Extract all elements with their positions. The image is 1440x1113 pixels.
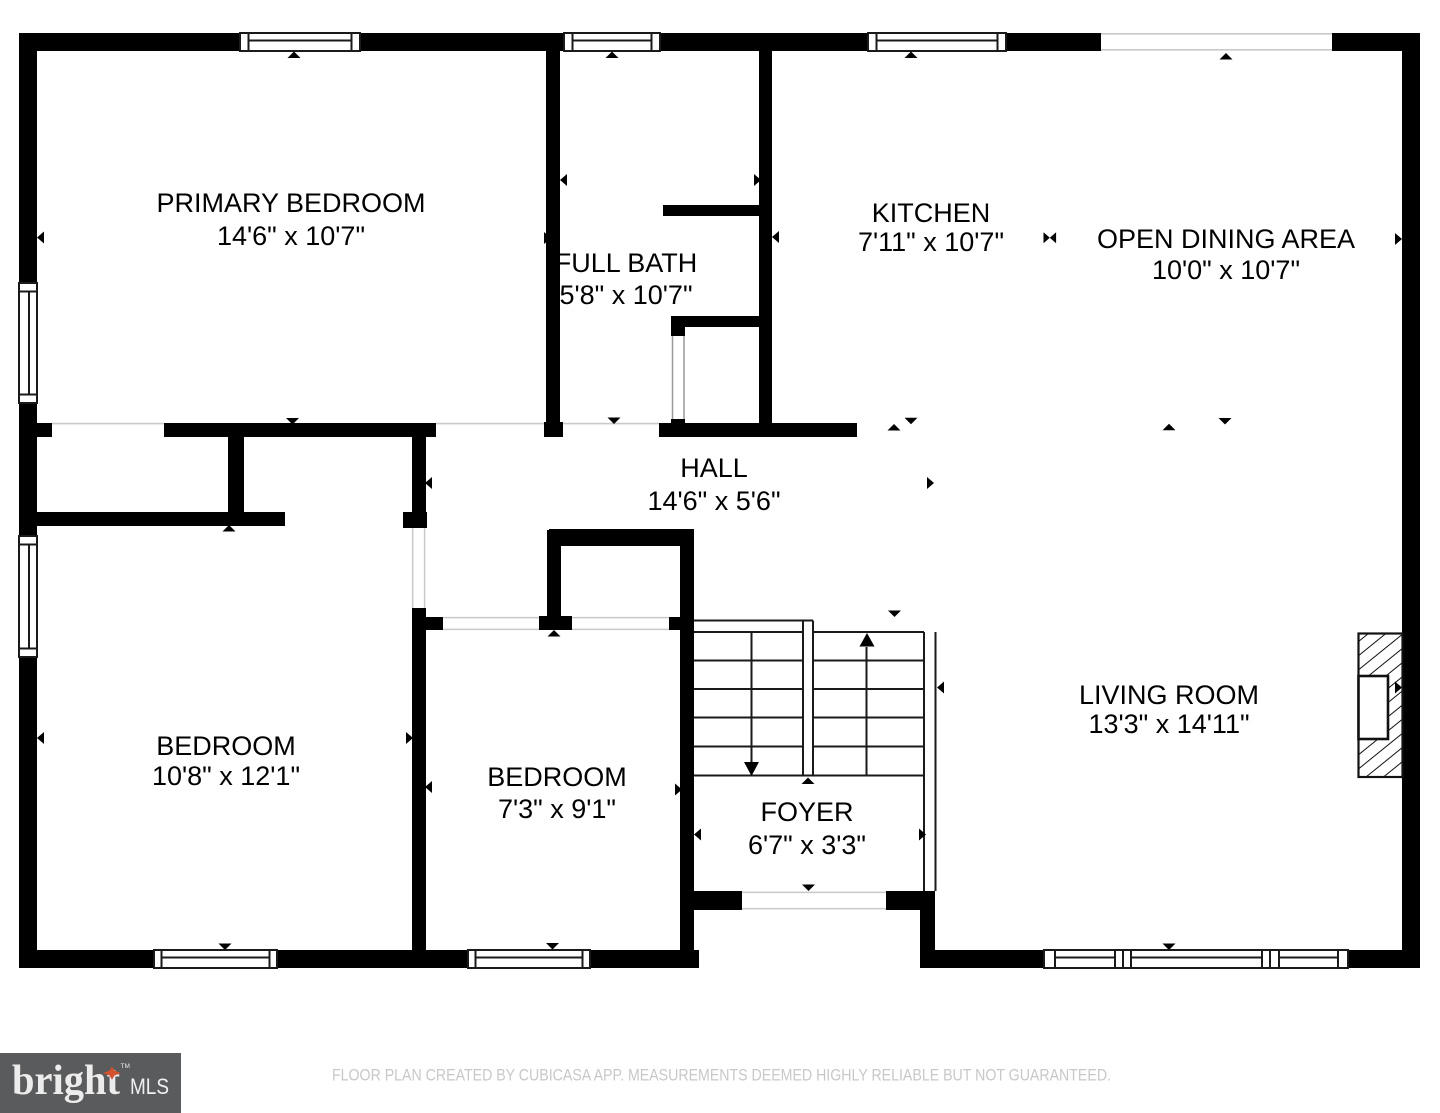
- svg-text:10'8" x 12'1": 10'8" x 12'1": [152, 761, 300, 791]
- svg-text:MLS: MLS: [130, 1074, 169, 1099]
- svg-text:13'3" x 14'11": 13'3" x 14'11": [1088, 709, 1249, 739]
- svg-text:TM: TM: [121, 1063, 130, 1070]
- svg-text:HALL: HALL: [680, 453, 748, 483]
- svg-text:BEDROOM: BEDROOM: [487, 762, 627, 792]
- svg-text:6'7" x 3'3": 6'7" x 3'3": [748, 830, 866, 860]
- svg-text:10'0" x 10'7": 10'0" x 10'7": [1152, 255, 1300, 285]
- svg-text:FULL BATH: FULL BATH: [555, 248, 698, 278]
- svg-text:bright: bright: [12, 1058, 120, 1104]
- svg-text:FOYER: FOYER: [760, 797, 853, 827]
- svg-text:KITCHEN: KITCHEN: [872, 198, 991, 228]
- svg-text:PRIMARY BEDROOM: PRIMARY BEDROOM: [156, 188, 425, 218]
- svg-text:OPEN DINING AREA: OPEN DINING AREA: [1097, 224, 1355, 254]
- svg-text:7'11" x 10'7": 7'11" x 10'7": [858, 227, 1004, 257]
- svg-text:FLOOR PLAN CREATED BY CUBICASA: FLOOR PLAN CREATED BY CUBICASA APP. MEAS…: [332, 1067, 1111, 1085]
- svg-text:7'3" x 9'1": 7'3" x 9'1": [498, 794, 616, 824]
- svg-text:14'6" x 5'6": 14'6" x 5'6": [647, 486, 780, 516]
- svg-text:5'8" x 10'7": 5'8" x 10'7": [559, 280, 692, 310]
- svg-text:BEDROOM: BEDROOM: [156, 731, 296, 761]
- svg-text:LIVING ROOM: LIVING ROOM: [1079, 680, 1259, 710]
- svg-text:14'6" x 10'7": 14'6" x 10'7": [217, 221, 365, 251]
